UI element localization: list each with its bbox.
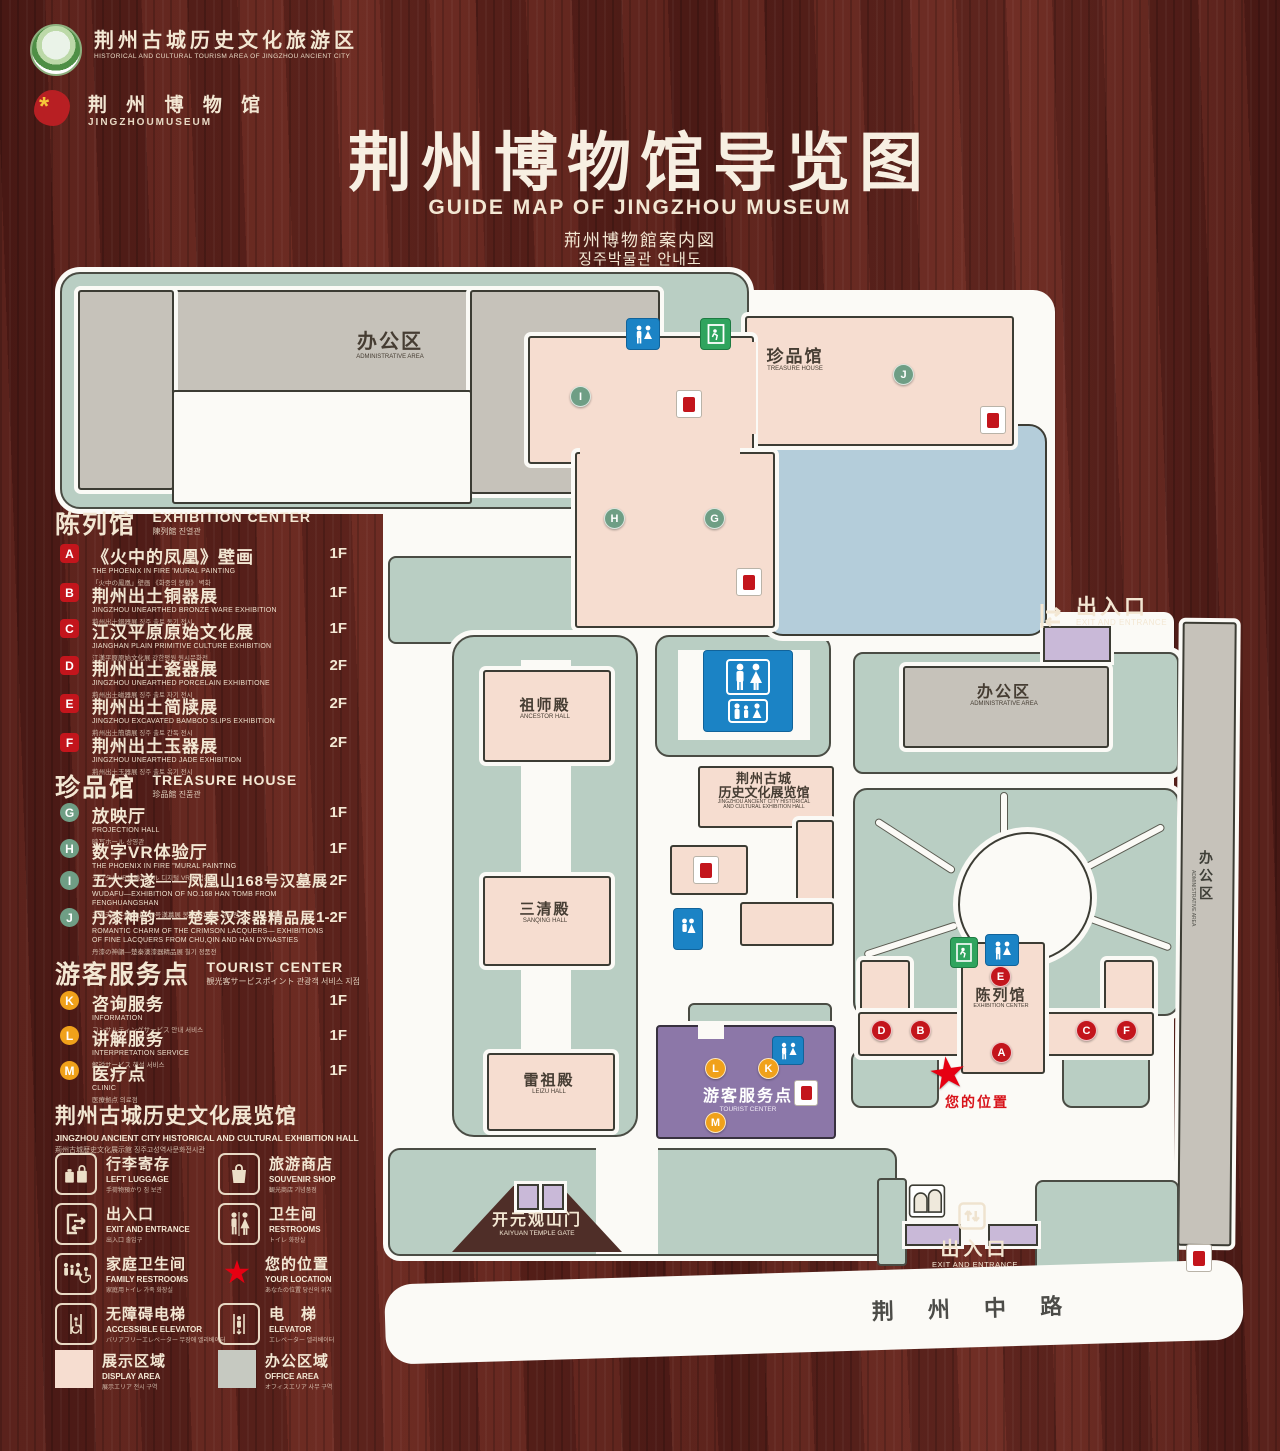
leizu-hall-label: 雷祖殿 LEIZU HALL bbox=[487, 1073, 611, 1096]
accessible-elevator-icon bbox=[55, 1303, 97, 1345]
restroom-icon-central bbox=[703, 650, 793, 732]
treasure-house-building-right bbox=[745, 316, 1014, 446]
page-subtitle-en: GUIDE MAP OF JINGZHOU MUSEUM bbox=[0, 196, 1280, 220]
legend-section-tourist-title: 游客服务点 TOURIST CENTER 観光客サービスポイント 관광객 서비스… bbox=[55, 955, 373, 991]
map-marker-l: L bbox=[705, 1058, 726, 1079]
fire-safety-icon-4 bbox=[693, 856, 719, 884]
history-hall-bottom-bar bbox=[740, 902, 834, 946]
legend-section-treasure-title: 珍品馆 TREASURE HOUSE 珍品館 진품관 bbox=[55, 768, 373, 804]
legend-display-area: 展示区域DISPLAY AREA展示エリア 전시 구역 bbox=[55, 1350, 207, 1391]
restroom-icon bbox=[218, 1203, 260, 1245]
badge-i: I bbox=[60, 871, 79, 890]
badge-h: H bbox=[60, 839, 79, 858]
legend-icon-row-4: 无障碍电梯ACCESSIBLE ELEVATORバリアフリーエレベーター 무장애… bbox=[55, 1303, 373, 1349]
restroom-icon-exhibition bbox=[985, 934, 1019, 966]
your-location-label: 您的位置 bbox=[922, 1092, 1032, 1112]
tourism-area-logo: 荆州古城历史文化旅游区 HISTORICAL AND CULTURAL TOUR… bbox=[30, 24, 358, 76]
treasure-house-label: 珍品馆 TREASURE HOUSE bbox=[735, 348, 855, 373]
road-label: 荆 州 中 路 bbox=[871, 1288, 1076, 1326]
walkway-band bbox=[388, 556, 582, 644]
luggage-icon bbox=[55, 1153, 97, 1195]
fire-safety-icon-2 bbox=[980, 406, 1006, 434]
legend-item-m: M 医疗点 CLINIC 医療拠点 의료점 1F bbox=[55, 1060, 373, 1104]
legend-item-e: E 荆州出土简牍展 JINGZHOU EXCAVATED BAMBOO SLIP… bbox=[55, 693, 373, 737]
restroom-icon-history-hall bbox=[673, 908, 703, 950]
exit-label-east: 出入口 EXIT AND ENTRANCE bbox=[1076, 596, 1206, 628]
history-hall-label: 荆州古城 历史文化展览馆 JINGZHOU ANCIENT CITY HISTO… bbox=[690, 772, 838, 811]
garden-path-3 bbox=[1000, 792, 1008, 840]
badge-b: B bbox=[60, 583, 79, 602]
page-title: 荆州博物馆导览图 bbox=[0, 112, 1280, 204]
legend-left-luggage: 行李寄存LEFT LUGGAGE手荷物預かり 짐 보관 bbox=[55, 1153, 207, 1195]
male-female-icon bbox=[726, 659, 770, 695]
exit-arrows-icon-east bbox=[1036, 600, 1068, 632]
map-marker-k: K bbox=[758, 1058, 779, 1079]
legend-hall-note: 荆州古城历史文化展览馆 JINGZHOU ANCIENT CITY HISTOR… bbox=[55, 1100, 373, 1155]
turnstile-icon bbox=[908, 1183, 946, 1219]
fire-safety-icon-3 bbox=[736, 568, 762, 596]
map-marker-b: B bbox=[910, 1020, 931, 1041]
badge-f: F bbox=[60, 733, 79, 752]
map-marker-j: J bbox=[893, 364, 914, 385]
badge-d: D bbox=[60, 656, 79, 675]
office-area-swatch bbox=[218, 1350, 256, 1388]
gate-block-left bbox=[517, 1184, 539, 1210]
exit-icon-treasure bbox=[700, 318, 731, 350]
road: 荆 州 中 路 bbox=[384, 1259, 1244, 1364]
badge-k: K bbox=[60, 991, 79, 1010]
admin-strip-label-en: ADMINISTRATIVE AREA bbox=[1188, 870, 1196, 1050]
location-star-icon: ★ bbox=[218, 1253, 256, 1291]
map-marker-c: C bbox=[1076, 1020, 1097, 1041]
legend-restrooms: 卫生间RESTROOMSトイレ 화장실 bbox=[218, 1203, 370, 1245]
walkway-exit-right bbox=[1035, 1180, 1179, 1274]
treasure-house-building-lower bbox=[575, 452, 775, 628]
legend-exit-entrance: 出入口EXIT AND ENTRANCE出入口 출입구 bbox=[55, 1203, 207, 1245]
admin-area-label-top: 办公区 ADMINISTRATIVE AREA bbox=[320, 332, 460, 360]
badge-c: C bbox=[60, 619, 79, 638]
legend-icon-row-5: 展示区域DISPLAY AREA展示エリア 전시 구역 办公区域OFFICE A… bbox=[55, 1350, 373, 1396]
admin-courtyard bbox=[172, 390, 472, 504]
legend-family-restrooms: 家庭卫生间FAMILY RESTROOMS家庭用トイレ 가족 화장실 bbox=[55, 1253, 207, 1295]
elevator-arrows-icon-south bbox=[957, 1201, 987, 1231]
admin-strip-label: 办公区 bbox=[1196, 850, 1216, 1070]
map-marker-d: D bbox=[871, 1020, 892, 1041]
map-marker-h: H bbox=[604, 508, 625, 529]
tourism-area-logo-title: 荆州古城历史文化旅游区 bbox=[94, 24, 358, 53]
badge-g: G bbox=[60, 803, 79, 822]
tourism-area-logo-icon bbox=[30, 24, 82, 76]
family-restroom-icon bbox=[728, 699, 768, 723]
map-marker-a: A bbox=[991, 1042, 1012, 1063]
exit-entrance-icon bbox=[55, 1203, 97, 1245]
lake bbox=[765, 424, 1047, 636]
ancestor-hall-label: 祖师殿 ANCESTOR HALL bbox=[483, 698, 607, 721]
badge-j: J bbox=[60, 908, 79, 927]
elevator-icon bbox=[218, 1303, 260, 1345]
legend-item-j: J 丹漆神韵——楚秦汉漆器精品展 ROMANTIC CHARM OF THE C… bbox=[55, 907, 373, 956]
exhibition-foot-right bbox=[1062, 1050, 1150, 1108]
fire-safety-icon-6 bbox=[1186, 1244, 1212, 1272]
legend-office-area: 办公区域OFFICE AREAオフィスエリア 사무 구역 bbox=[218, 1350, 370, 1391]
family-restroom-icon bbox=[55, 1253, 97, 1295]
map-marker-m: M bbox=[705, 1112, 726, 1133]
restroom-icon-treasure bbox=[626, 318, 660, 350]
map-marker-i: I bbox=[570, 386, 591, 407]
gate-block-right bbox=[542, 1184, 564, 1210]
legend-your-location: ★ 您的位置YOUR LOCATIONあなたの位置 당신의 위치 bbox=[218, 1253, 370, 1294]
fire-safety-icon-1 bbox=[676, 390, 702, 418]
badge-m: M bbox=[60, 1061, 79, 1080]
map-marker-g: G bbox=[704, 508, 725, 529]
legend-elevator: 电 梯ELEVATORエレベーター 엘리베이터 bbox=[218, 1303, 370, 1345]
badge-e: E bbox=[60, 694, 79, 713]
exit-icon-exhibition bbox=[950, 937, 978, 968]
admin-building-left-wing bbox=[78, 290, 174, 490]
badge-a: A bbox=[60, 544, 79, 563]
page-subtitle-ko: 징주박물관 안내도 bbox=[0, 248, 1280, 269]
treasure-house-join bbox=[580, 444, 740, 466]
map-marker-f: F bbox=[1116, 1020, 1137, 1041]
walkway-exit-left bbox=[877, 1178, 907, 1266]
legend-accessible-elevator: 无障碍电梯ACCESSIBLE ELEVATORバリアフリーエレベーター 무장애… bbox=[55, 1303, 207, 1345]
legend-item-a: A 《火中的凤凰》壁画 THE PHOENIX IN FIRE 'MURAL P… bbox=[55, 543, 373, 587]
display-area-swatch bbox=[55, 1350, 93, 1388]
exhibition-center-label: 陈列馆 EXHIBITION CENTER bbox=[946, 988, 1056, 1010]
map-marker-e: E bbox=[990, 966, 1011, 987]
legend-icon-row-2: 出入口EXIT AND ENTRANCE出入口 출입구 卫生间RESTROOMS… bbox=[55, 1203, 373, 1249]
fire-safety-icon-5 bbox=[794, 1080, 818, 1106]
admin-area-label-right: 办公区 ADMINISTRATIVE AREA bbox=[934, 684, 1074, 708]
restroom-icon-tourist bbox=[772, 1036, 804, 1065]
badge-l: L bbox=[60, 1026, 79, 1045]
tourist-center-notch bbox=[698, 1025, 724, 1039]
legend-icon-row-3: 家庭卫生间FAMILY RESTROOMS家庭用トイレ 가족 화장실 ★ 您的位… bbox=[55, 1253, 373, 1299]
legend-section-exhibition-title: 陈列馆 EXHIBITION CENTER 陳列館 진열관 bbox=[55, 505, 373, 541]
shopping-bag-icon bbox=[218, 1153, 260, 1195]
legend-icon-row-1: 行李寄存LEFT LUGGAGE手荷物預かり 짐 보관 旅游商店SOUVENIR… bbox=[55, 1153, 373, 1199]
legend-souvenir-shop: 旅游商店SOUVENIR SHOP観光商店 기념품점 bbox=[218, 1153, 370, 1195]
sanqing-hall-label: 三清殿 SANQING HALL bbox=[483, 902, 607, 925]
tourism-area-logo-subtitle: HISTORICAL AND CULTURAL TOURISM AREA OF … bbox=[94, 53, 358, 60]
kaiyuan-gate-label: 开元观山门 KAIYUAN TEMPLE GATE bbox=[462, 1212, 612, 1237]
